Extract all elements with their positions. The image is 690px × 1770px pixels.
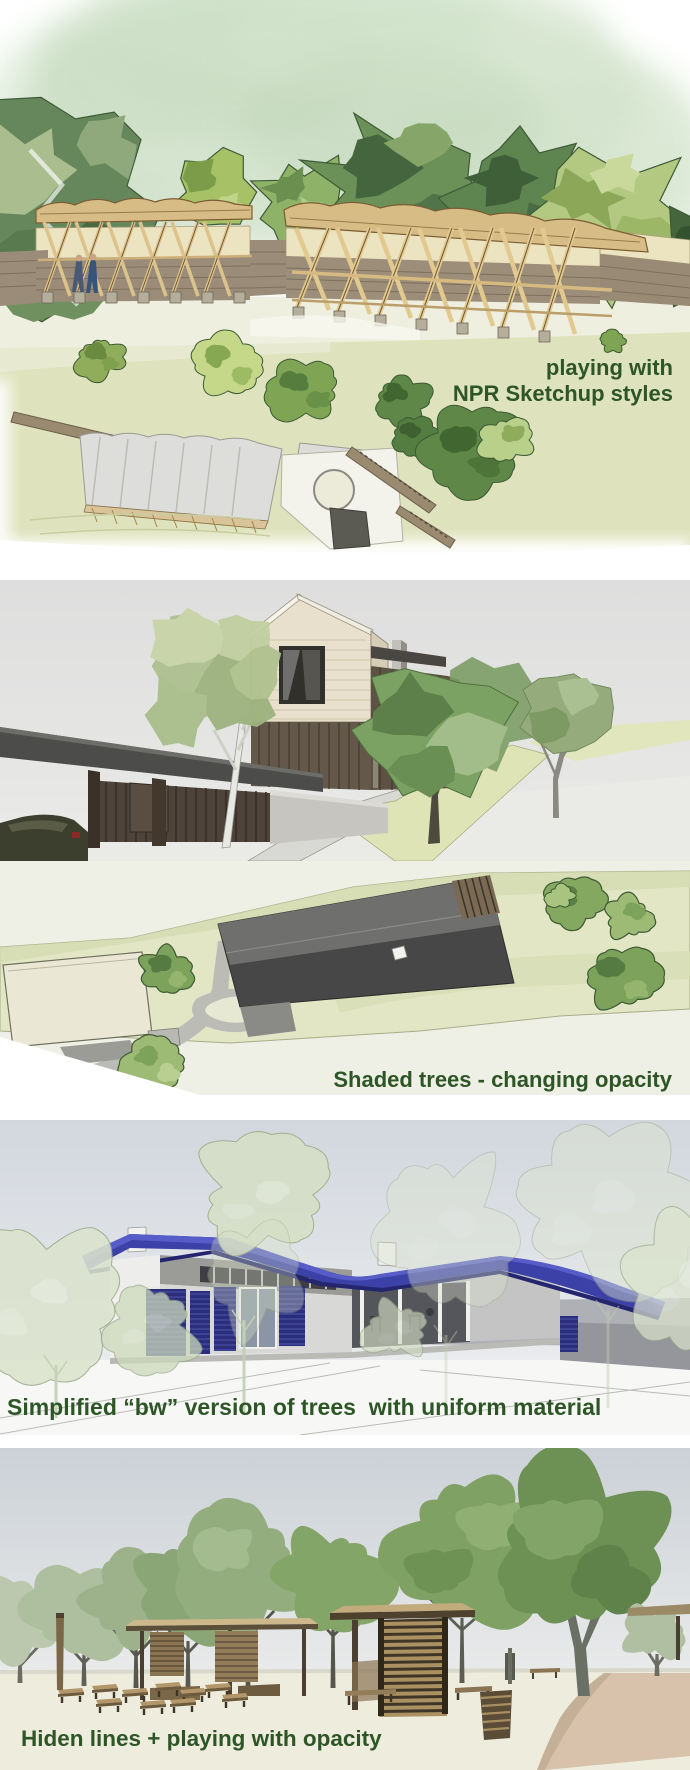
svg-text:Simplified “bw” version of tre: Simplified “bw” version of trees with un… xyxy=(7,1394,601,1420)
svg-text:NPR Sketchup styles: NPR Sketchup styles xyxy=(453,381,673,406)
svg-text:Shaded trees - changing opacit: Shaded trees - changing opacity xyxy=(333,1067,672,1092)
svg-text:Hiden lines + playing with opa: Hiden lines + playing with opacity xyxy=(21,1726,382,1751)
svg-text:playing with: playing with xyxy=(546,355,673,380)
